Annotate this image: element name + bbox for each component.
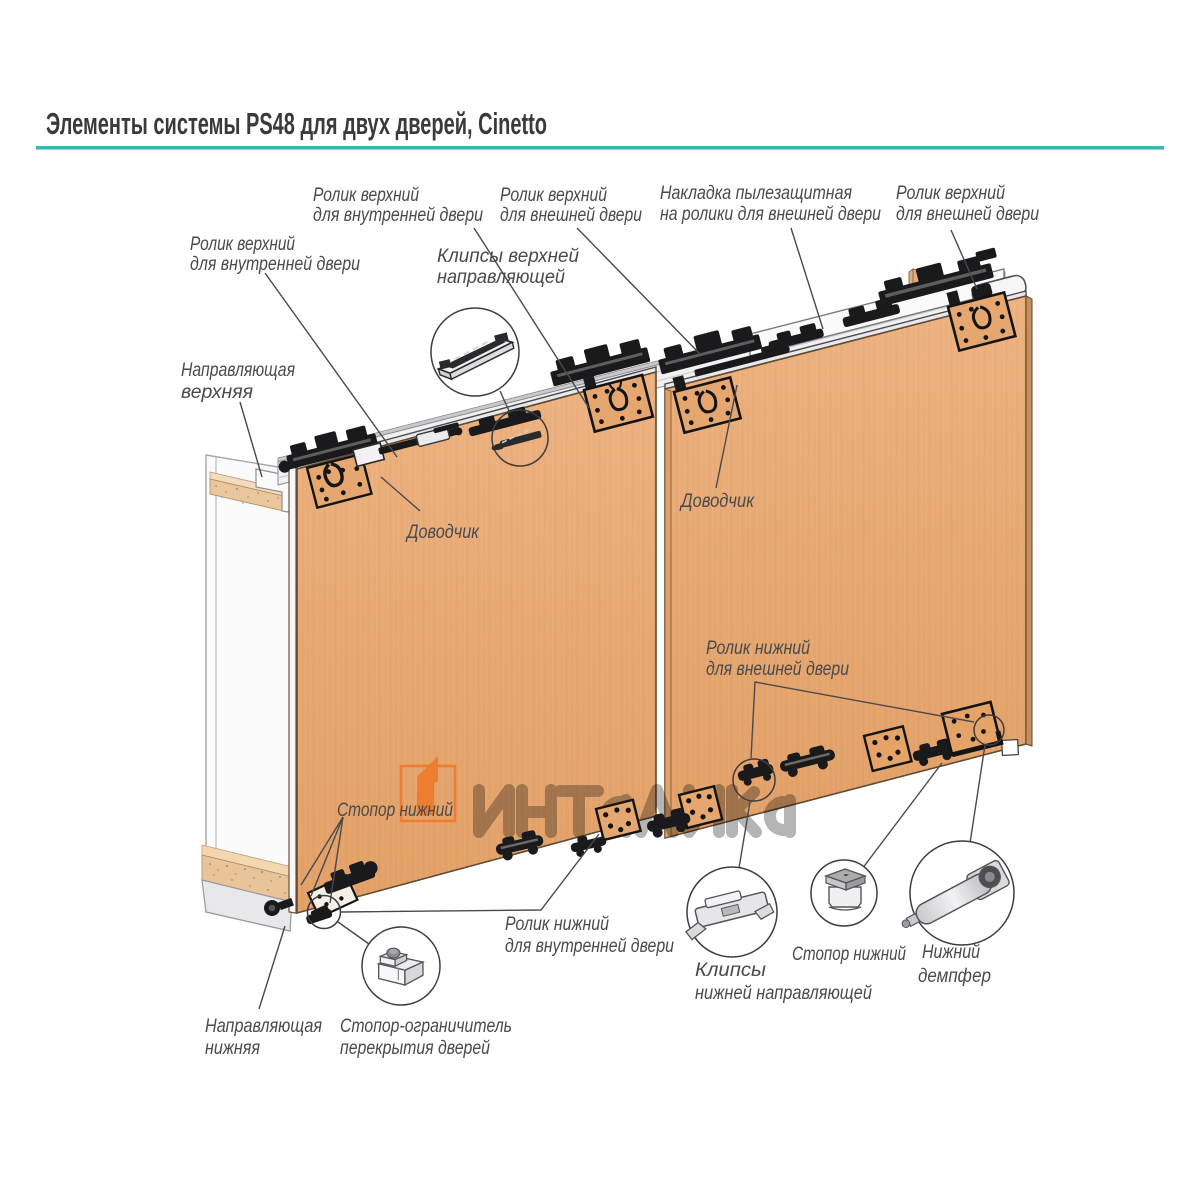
svg-text:Клипсы: Клипсы xyxy=(695,960,766,981)
svg-text:верхняя: верхняя xyxy=(181,382,253,403)
svg-text:Доводчик: Доводчик xyxy=(405,522,480,543)
svg-text:для внешней двери: для внешней двери xyxy=(500,205,642,226)
svg-text:Стопор-ограничитель: Стопор-ограничитель xyxy=(340,1016,512,1037)
svg-text:для внутренней двери: для внутренней двери xyxy=(313,205,483,226)
svg-text:Ролик нижний: Ролик нижний xyxy=(706,638,810,659)
svg-text:Направляющая: Направляющая xyxy=(181,360,295,381)
svg-text:Доводчик: Доводчик xyxy=(679,491,755,512)
svg-text:Элементы системы PS48 для двух: Элементы системы PS48 для двух дверей, C… xyxy=(46,106,547,141)
svg-text:Ролик верхний: Ролик верхний xyxy=(313,185,419,206)
svg-text:нижней направляющей: нижней направляющей xyxy=(695,983,872,1004)
svg-text:для внутренней двери: для внутренней двери xyxy=(505,936,674,957)
svg-text:Стопор нижний: Стопор нижний xyxy=(792,944,906,965)
svg-text:перекрытия дверей: перекрытия дверей xyxy=(340,1038,490,1059)
svg-text:для внешней двери: для внешней двери xyxy=(896,204,1039,225)
svg-text:на ролики для внешней двери: на ролики для внешней двери xyxy=(660,204,881,225)
svg-text:для внутренней двери: для внутренней двери xyxy=(190,254,360,275)
svg-text:Ролик верхний: Ролик верхний xyxy=(500,185,607,206)
svg-text:нижняя: нижняя xyxy=(205,1038,260,1059)
svg-text:Ролик верхний: Ролик верхний xyxy=(190,234,295,255)
svg-text:Направляющая: Направляющая xyxy=(205,1016,322,1037)
svg-text:Ролик нижний: Ролик нижний xyxy=(505,914,609,935)
svg-text:Нижний: Нижний xyxy=(922,942,980,963)
svg-text:демпфер: демпфер xyxy=(918,966,991,987)
svg-text:Клипсы верхней: Клипсы верхней xyxy=(437,246,579,267)
svg-text:Ролик верхний: Ролик верхний xyxy=(896,183,1005,204)
svg-text:для внешней двери: для внешней двери xyxy=(706,659,849,680)
svg-text:направляющей: направляющей xyxy=(437,267,565,288)
svg-text:Накладка пылезащитная: Накладка пылезащитная xyxy=(660,183,852,204)
svg-text:Стопор нижний: Стопор нижний xyxy=(337,800,453,821)
